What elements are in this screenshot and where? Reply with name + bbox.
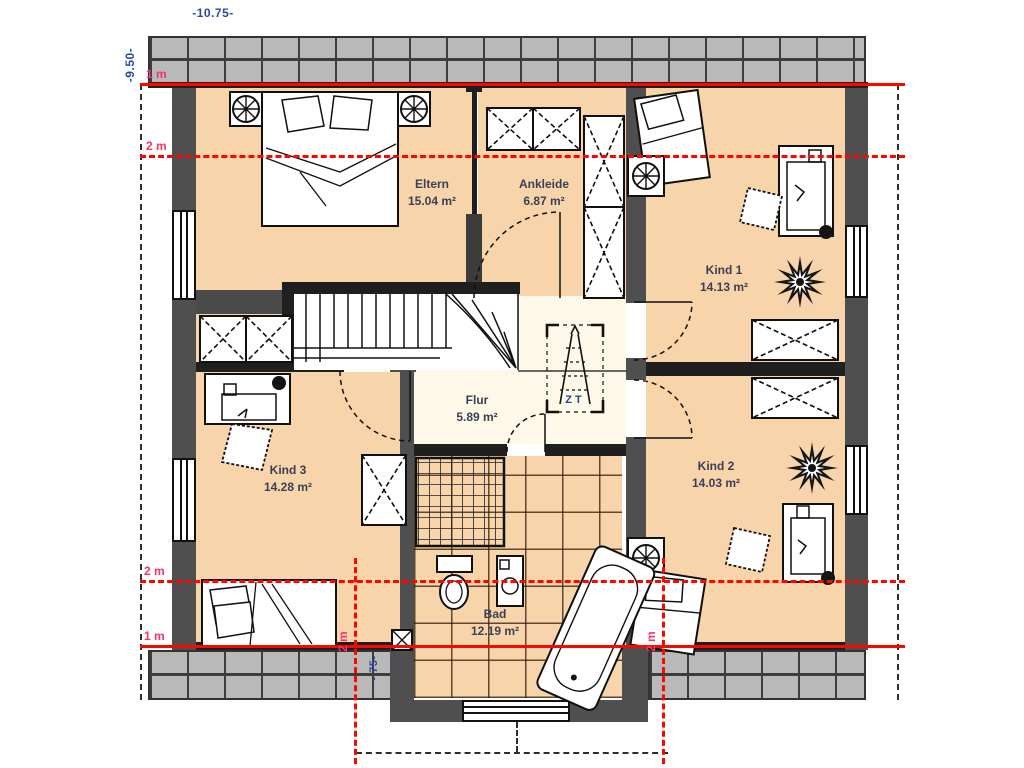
pillow [214, 602, 254, 638]
attic-ladder: ZT [547, 325, 603, 412]
room-label-kind1: Kind 1 14.13 m² [664, 262, 784, 296]
room-label-flur: Flur 5.89 m² [417, 392, 537, 426]
room-name: Eltern [372, 176, 492, 193]
room-label-bad: Bad 12.19 m² [435, 606, 555, 640]
attic-ladder-label: ZT [565, 394, 584, 406]
kind2-furniture [628, 378, 838, 655]
mark-2m-dormer-right: 2 m [644, 622, 658, 652]
room-name: Flur [417, 392, 537, 409]
room-area: 12.19 m² [435, 623, 555, 640]
room-area: 14.13 m² [664, 279, 784, 296]
mark-2m-bottom: 2 m [144, 564, 165, 578]
height-line-2m-bottom [140, 580, 905, 583]
room-area: 5.89 m² [417, 409, 537, 426]
height-line-1m-bottom [140, 645, 905, 648]
floor-plan: ZT [0, 0, 1024, 768]
room-label-kind3: Kind 3 14.28 m² [228, 462, 348, 496]
door-ankleide [474, 212, 560, 298]
room-area: 14.03 m² [656, 475, 776, 492]
bad-fixtures [392, 458, 657, 712]
door-kind3 [340, 371, 410, 441]
chair [726, 528, 770, 572]
plant [786, 442, 838, 494]
dimension-height: -9.50- [123, 35, 137, 95]
door-kind1 [634, 302, 692, 360]
room-label-kind2: Kind 2 14.03 m² [656, 458, 776, 492]
toilet-tank [437, 556, 472, 572]
room-name: Kind 1 [664, 262, 784, 279]
room-name: Bad [435, 606, 555, 623]
room-name: Kind 3 [228, 462, 348, 479]
dormer-line-right [662, 558, 665, 764]
stairs [294, 294, 518, 370]
room-name: Ankleide [484, 176, 604, 193]
mark-1m-bottom: 1 m [144, 629, 165, 643]
dormer-line-left [354, 558, 357, 764]
chair [740, 188, 782, 230]
furniture-layer: ZT [0, 0, 1024, 768]
kind3-furniture [202, 374, 406, 646]
room-label-ankleide: Ankleide 6.87 m² [484, 176, 604, 210]
mark-2m-dormer-left: 2 m [336, 622, 350, 652]
room-name: Kind 2 [656, 458, 776, 475]
kind1-furniture [628, 90, 838, 360]
height-line-1m-top [140, 83, 905, 86]
room-label-eltern: Eltern 15.04 m² [372, 176, 492, 210]
mark-1m-top: 1 m [146, 67, 167, 81]
pillow [330, 96, 372, 130]
dimension-width: -10.75- [158, 6, 268, 20]
room-area: 14.28 m² [228, 479, 348, 496]
shower [416, 458, 504, 546]
room-area: 6.87 m² [484, 193, 604, 210]
mark-2m-top: 2 m [146, 139, 167, 153]
dimension-dormer: -.75- [368, 640, 380, 696]
room-area: 15.04 m² [372, 193, 492, 210]
pillow [282, 96, 324, 132]
height-line-2m-top [140, 155, 905, 158]
door-kind2 [634, 380, 692, 438]
